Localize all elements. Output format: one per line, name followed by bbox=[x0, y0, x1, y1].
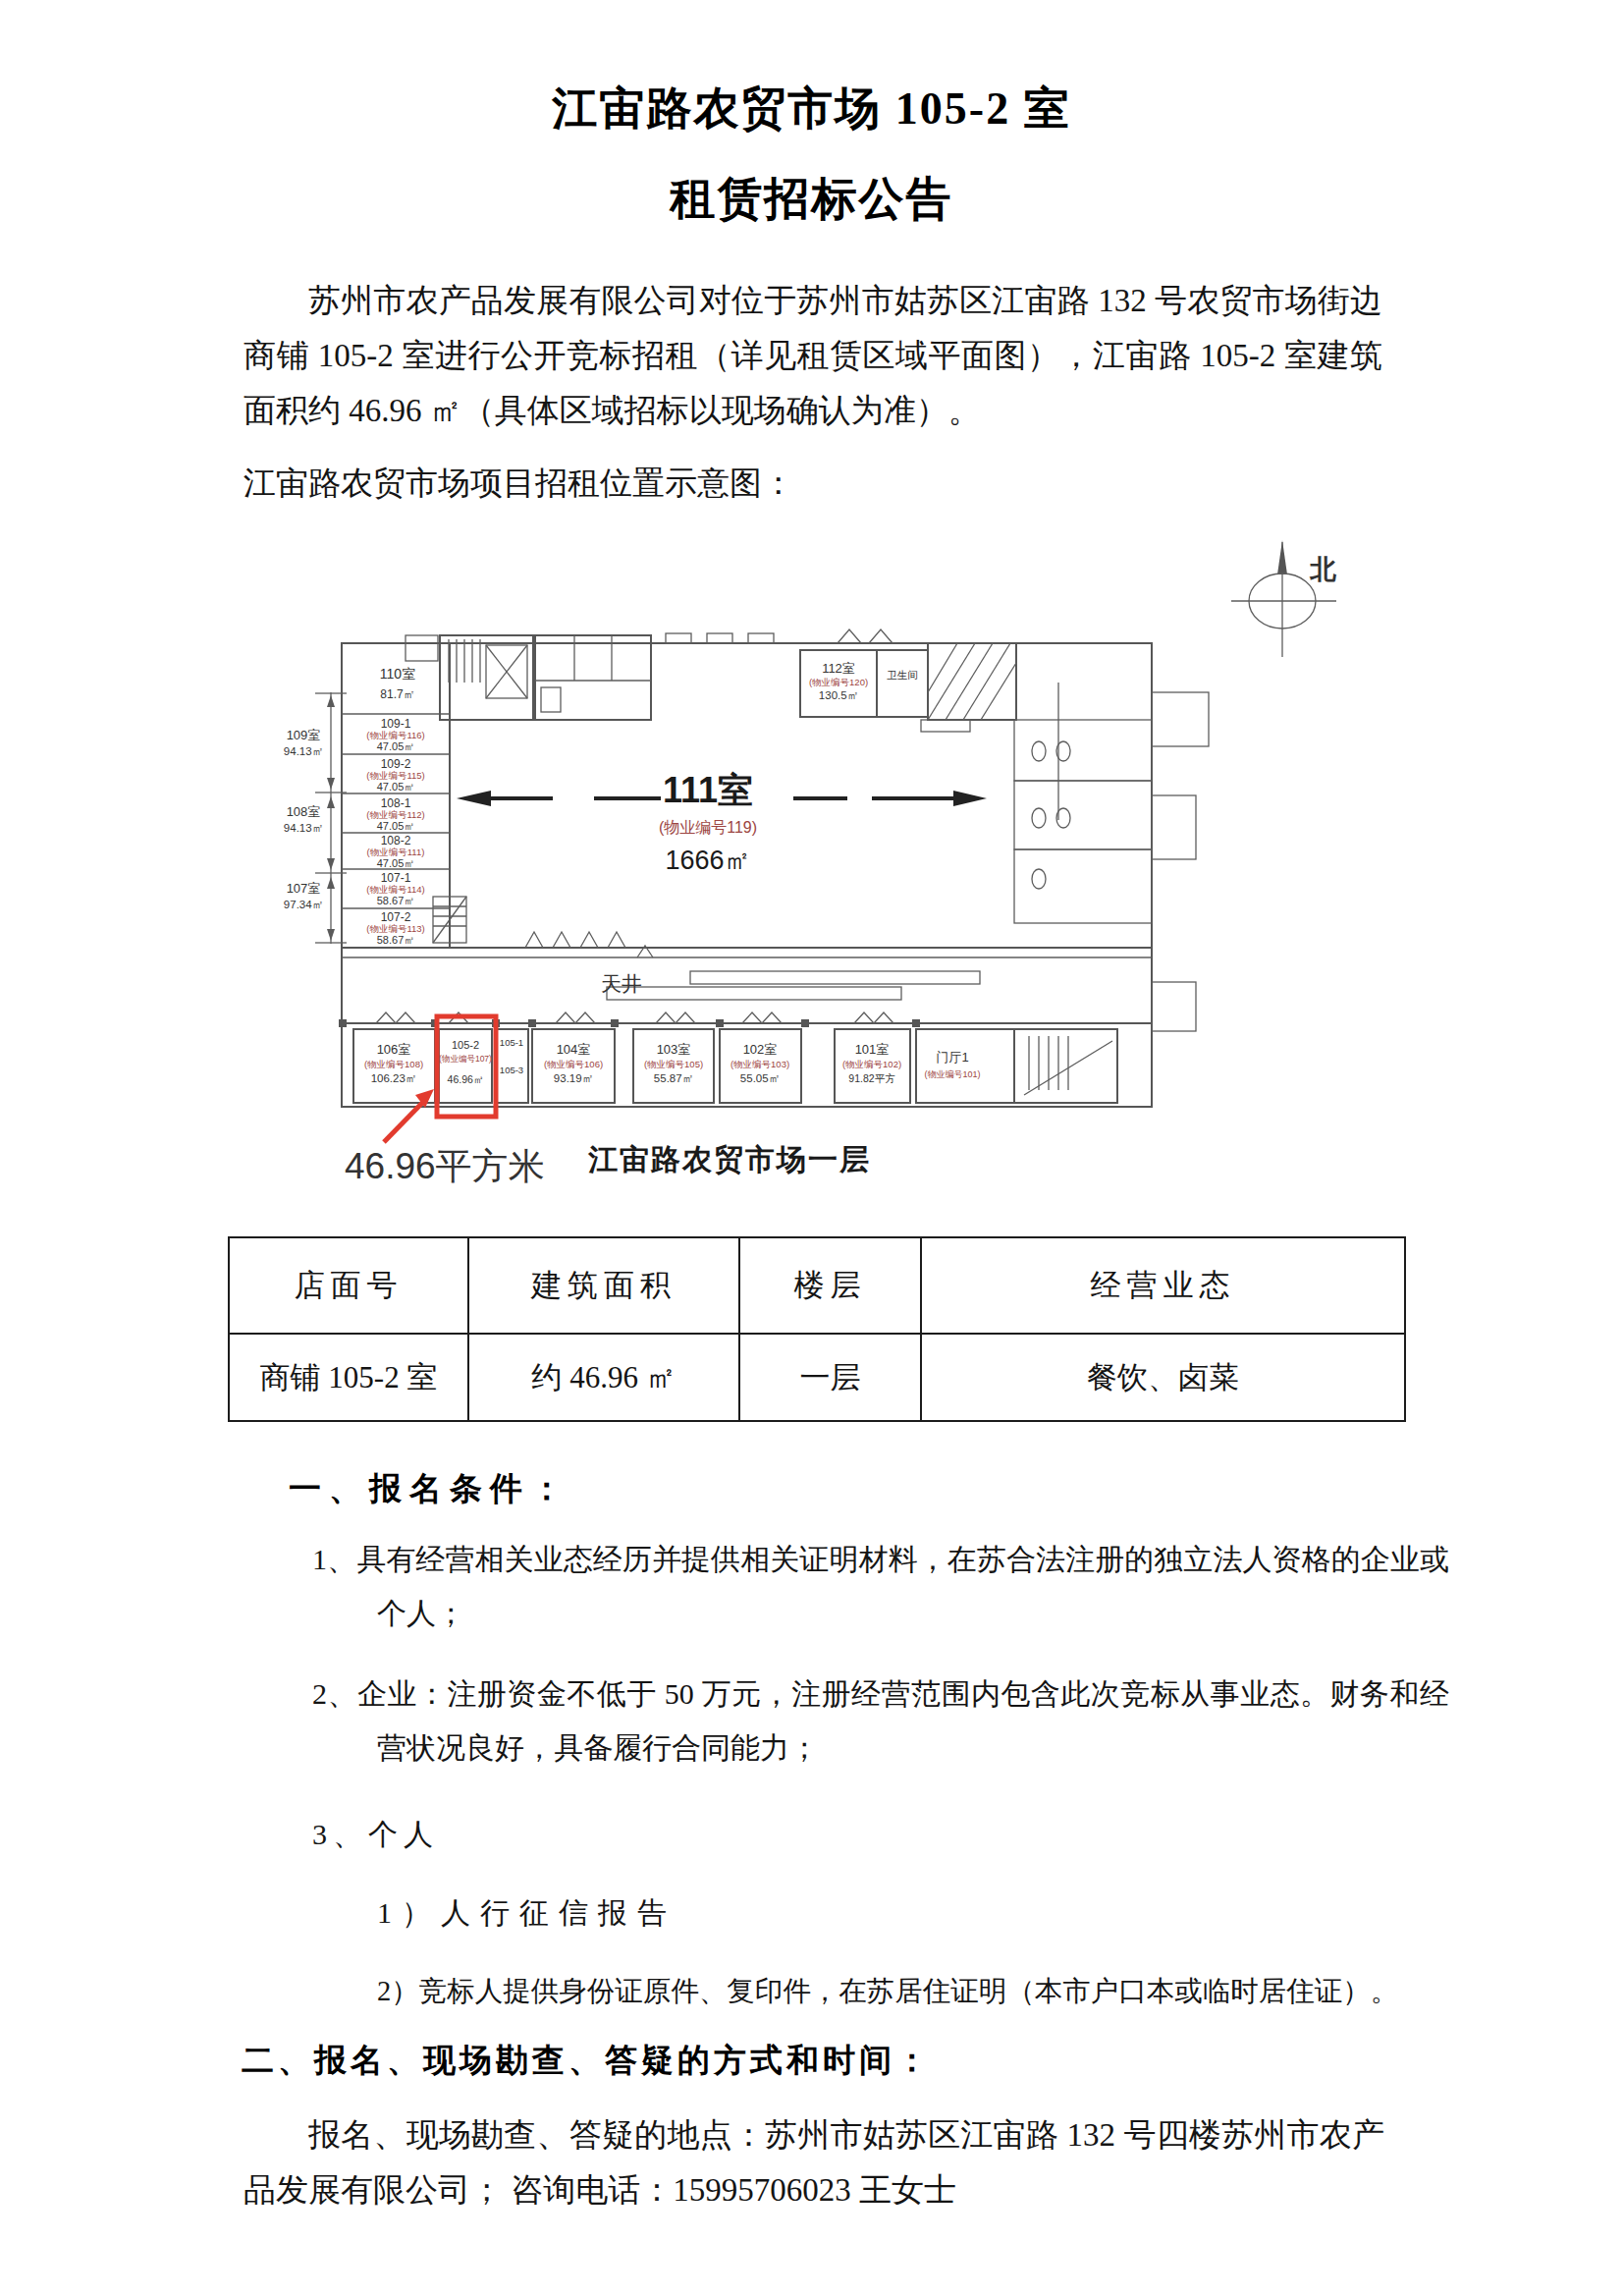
dim-109-area: 94.13㎡ bbox=[284, 745, 323, 757]
room-107-2-code: (物业编号113) bbox=[366, 923, 424, 934]
section1-sub2: 2）竞标人提供身份证原件、复印件，在苏居住证明（本市户口本或临时居住证）。 bbox=[377, 1964, 1398, 2018]
room-108-1-area: 47.05㎡ bbox=[377, 820, 415, 832]
floor-plan-figure: 北 bbox=[229, 535, 1387, 1203]
section1-sub1: 1）人行征信报告 bbox=[377, 1886, 676, 1940]
table-header-row: 店面号 建筑面积 楼层 经营业态 bbox=[229, 1237, 1405, 1334]
room-109-2-label: 109-2 bbox=[381, 757, 411, 771]
room-108-2-label: 108-2 bbox=[381, 834, 411, 847]
room-108-1-label: 108-1 bbox=[381, 796, 411, 810]
dim-107-label: 107室 bbox=[287, 881, 321, 896]
dim-107-area: 97.34㎡ bbox=[284, 899, 323, 910]
room-109-1-label: 109-1 bbox=[381, 717, 411, 731]
room-102-area: 55.05㎡ bbox=[740, 1072, 780, 1084]
plan-labels: 110室 81.7㎡ 109-1 (物业编号116) 47.05㎡ 109-2 … bbox=[284, 661, 981, 1175]
section2-body: 报名、现场勘查、答疑的地点：苏州市姑苏区江宙路 132 号四楼苏州市农产品发展有… bbox=[243, 2107, 1384, 2217]
col-header-building-area: 建筑面积 bbox=[468, 1237, 739, 1334]
room-107-2-area: 58.67㎡ bbox=[377, 934, 415, 946]
room-105-3-label: 105-3 bbox=[500, 1065, 523, 1075]
figure-intro-label: 江宙路农贸市场项目招租位置示意图： bbox=[243, 456, 794, 511]
room-102-code: (物业编号103) bbox=[730, 1059, 789, 1069]
page-title-line1: 江宙路农贸市场 105-2 室 bbox=[0, 79, 1623, 139]
room-104-area: 93.19㎡ bbox=[554, 1072, 593, 1084]
section2-title: 二、报名、现场勘查、答疑的方式和时间： bbox=[242, 2039, 932, 2083]
room-108-2-code: (物业编号111) bbox=[367, 847, 425, 857]
plan-walls bbox=[339, 629, 1209, 1107]
shop-spec-table: 店面号 建筑面积 楼层 经营业态 商铺 105-2 室 约 46.96 ㎡ 一层… bbox=[228, 1236, 1406, 1422]
room-105-2-label: 105-2 bbox=[452, 1039, 479, 1051]
cell-shop-number: 商铺 105-2 室 bbox=[229, 1334, 468, 1421]
section1-title: 一、报名条件： bbox=[289, 1467, 570, 1511]
room-wc-label: 卫生间 bbox=[887, 669, 918, 681]
dim-108-area: 94.13㎡ bbox=[284, 822, 323, 834]
room-103-code: (物业编号105) bbox=[644, 1059, 703, 1069]
highlight-area-label: 46.96平方米 bbox=[345, 1146, 545, 1186]
room-107-1-code: (物业编号114) bbox=[366, 884, 424, 895]
col-header-business-type: 经营业态 bbox=[921, 1237, 1405, 1334]
col-header-shop-number: 店面号 bbox=[229, 1237, 468, 1334]
section1-item1: 1、具有经营相关业态经历并提供相关证明材料，在苏合法注册的独立法人资格的企业或个… bbox=[312, 1532, 1449, 1640]
dim-109-label: 109室 bbox=[287, 728, 321, 742]
cell-business-type: 餐饮、卤菜 bbox=[921, 1334, 1405, 1421]
room-106-label: 106室 bbox=[377, 1042, 411, 1057]
room-112-code: (物业编号120) bbox=[809, 677, 868, 687]
room-107-1-area: 58.67㎡ bbox=[377, 895, 415, 906]
room-110-label: 110室 bbox=[380, 666, 415, 682]
room-105-2-code: (物业编号107) bbox=[439, 1054, 492, 1064]
room-105-1-label: 105-1 bbox=[500, 1037, 523, 1048]
room-101-area: 91.82平方 bbox=[848, 1072, 895, 1084]
room-104-label: 104室 bbox=[557, 1042, 591, 1057]
intro-paragraph: 苏州市农产品发展有限公司对位于苏州市姑苏区江宙路 132 号农贸市场街边商铺 1… bbox=[243, 273, 1382, 438]
room-106-code: (物业编号108) bbox=[364, 1059, 423, 1069]
hall-111-code: (物业编号119) bbox=[659, 819, 757, 836]
room-110-area: 81.7㎡ bbox=[380, 687, 414, 701]
room-101-label: 101室 bbox=[855, 1042, 890, 1057]
room-103-label: 103室 bbox=[657, 1042, 691, 1057]
room-108-2-area: 47.05㎡ bbox=[377, 857, 415, 869]
room-109-2-code: (物业编号115) bbox=[366, 770, 424, 781]
room-109-1-code: (物业编号116) bbox=[366, 730, 424, 740]
room-112-label: 112室 bbox=[822, 661, 855, 676]
room-108-1-code: (物业编号112) bbox=[366, 809, 424, 820]
room-112-area: 130.5㎡ bbox=[819, 689, 858, 701]
room-104-code: (物业编号106) bbox=[544, 1059, 603, 1069]
table-row: 商铺 105-2 室 约 46.96 ㎡ 一层 餐饮、卤菜 bbox=[229, 1334, 1405, 1421]
room-109-2-area: 47.05㎡ bbox=[377, 781, 415, 793]
section1-item2: 2、企业：注册资金不低于 50 万元，注册经营范围内包含此次竞标从事业态。财务和… bbox=[312, 1667, 1449, 1775]
lobby-code: (物业编号101) bbox=[924, 1069, 980, 1079]
cell-floor: 一层 bbox=[739, 1334, 921, 1421]
room-107-1-label: 107-1 bbox=[381, 871, 411, 885]
hall-111-area: 1666㎡ bbox=[665, 846, 750, 875]
section1-item3: 3、个人 bbox=[312, 1807, 439, 1861]
page-title-line2: 租赁招标公告 bbox=[0, 169, 1623, 230]
room-105-2-area: 46.96㎡ bbox=[448, 1073, 484, 1085]
north-compass-icon: 北 bbox=[1231, 540, 1336, 657]
col-header-floor: 楼层 bbox=[739, 1237, 921, 1334]
plan-caption: 江宙路农贸市场一层 bbox=[587, 1143, 871, 1175]
cell-building-area: 约 46.96 ㎡ bbox=[468, 1334, 739, 1421]
hall-111-label: 111室 bbox=[663, 770, 753, 810]
compass-north-label: 北 bbox=[1309, 555, 1336, 584]
room-106-area: 106.23㎡ bbox=[371, 1072, 417, 1084]
courtyard-label: 天井 bbox=[601, 972, 642, 995]
room-107-2-label: 107-2 bbox=[381, 910, 411, 924]
room-102-label: 102室 bbox=[743, 1042, 778, 1057]
room-101-code: (物业编号102) bbox=[842, 1059, 901, 1069]
room-109-1-area: 47.05㎡ bbox=[377, 740, 415, 752]
dim-108-label: 108室 bbox=[287, 804, 321, 819]
room-103-area: 55.87㎡ bbox=[654, 1072, 693, 1084]
lobby-label: 门厅1 bbox=[936, 1050, 968, 1065]
announcement-page: 江宙路农贸市场 105-2 室 租赁招标公告 苏州市农产品发展有限公司对位于苏州… bbox=[0, 0, 1623, 2296]
